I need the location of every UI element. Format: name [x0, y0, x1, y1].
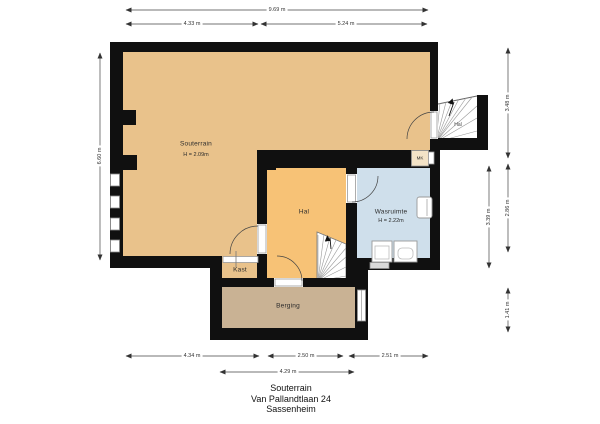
boiler: [417, 197, 432, 218]
room-floors: [117, 48, 435, 333]
entrance-hal-label: Hal: [454, 122, 462, 128]
basement-window: [111, 196, 120, 208]
berging-label: Berging: [276, 303, 300, 310]
wall: [210, 256, 222, 340]
washing-machine-door: [375, 246, 389, 259]
wall: [257, 150, 267, 287]
dim-top-right: 5.24 m: [336, 21, 357, 27]
door-leaf: [258, 225, 266, 253]
title-address: Van Pallandtlaan 24: [251, 394, 331, 405]
wall: [346, 258, 440, 270]
meterkast-label: MK: [417, 156, 424, 161]
wall-pilaster: [123, 155, 137, 170]
hal-label: Hal: [299, 209, 309, 216]
wall-pilaster: [123, 110, 136, 125]
door-leaf: [431, 112, 437, 138]
floorplan-canvas: 9.69 m 4.33 m 5.24 m 6.60 m 3.48 m 2.86 …: [0, 0, 600, 424]
title-floor: Souterrain: [251, 383, 331, 394]
wasruimte-vent: [370, 263, 389, 269]
door-leaf: [348, 175, 356, 202]
dim-right-upper: 3.48 m: [505, 93, 511, 114]
kast-door: [223, 257, 258, 263]
meterkast-door: [429, 152, 435, 164]
wall: [210, 328, 368, 340]
dryer-basket: [398, 248, 413, 259]
dim-top-left: 4.33 m: [182, 21, 203, 27]
title-city: Sassenheim: [251, 404, 331, 415]
dim-right-middle-outer: 2.86 m: [505, 198, 511, 219]
wall: [430, 42, 438, 112]
souterrain-label: Souterrain: [180, 141, 212, 148]
wasruimte-label: Wasruimte: [375, 209, 408, 216]
title-block: Souterrain Van Pallandtlaan 24 Sassenhei…: [251, 383, 331, 415]
wall: [113, 42, 438, 52]
dim-right-middle-inner: 3.39 m: [486, 207, 492, 228]
dim-bottom-middle: 2.50 m: [296, 353, 317, 359]
basement-window: [111, 174, 120, 186]
dim-bottom-right: 2.51 m: [380, 353, 401, 359]
basement-window: [111, 218, 120, 230]
wall: [477, 95, 488, 150]
dim-left-total: 6.60 m: [97, 146, 103, 167]
dim-bottom-left: 4.34 m: [182, 353, 203, 359]
souterrain-height: H = 2.09m: [183, 152, 209, 158]
basement-window: [111, 240, 120, 252]
door-leaf: [275, 279, 302, 286]
kast-label: Kast: [233, 267, 247, 274]
dim-top-total: 9.69 m: [267, 7, 288, 13]
wall: [110, 42, 123, 268]
wall: [110, 256, 222, 268]
entrance-stairs: [432, 96, 477, 145]
dim-bottom-second-row: 4.29 m: [278, 369, 299, 375]
wasruimte-height: H = 2.22m: [378, 218, 404, 224]
dim-right-lower: 1.41 m: [505, 300, 511, 321]
